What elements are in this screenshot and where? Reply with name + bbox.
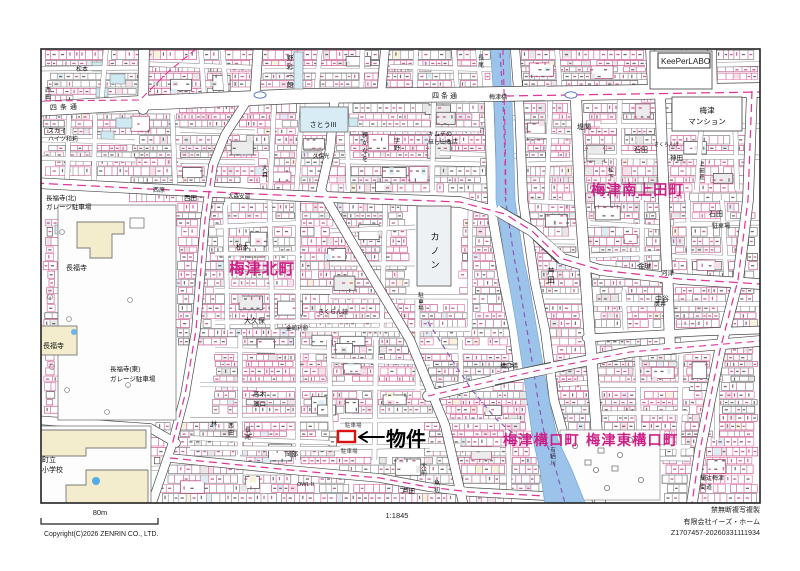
svg-text:梅津橋: 梅津橋 [489,93,507,101]
svg-text:ン: ン [430,260,439,270]
svg-text:縄辻梅津: 縄辻梅津 [700,474,724,482]
svg-text:石田: 石田 [634,146,648,154]
svg-text:一: 一 [287,73,294,80]
svg-text:ガレージ駐車場: ガレージ駐車場 [110,374,156,383]
svg-text:大久保: 大久保 [244,316,265,325]
svg-text:尾: 尾 [478,62,484,69]
svg-text:長福寺(北): 長福寺(北) [46,193,76,202]
svg-text:川: 川 [550,461,556,467]
svg-text:構口橋: 構口橋 [500,362,518,370]
svg-text:梅津構口町: 梅津構口町 [503,432,580,449]
svg-text:西原: 西原 [153,187,165,194]
svg-text:河津: 河津 [661,269,675,277]
svg-text:芦田: 芦田 [402,486,415,495]
svg-text:野: 野 [394,144,400,152]
svg-text:中谷: 中谷 [655,294,669,303]
svg-text:堤関: 堤関 [577,122,591,131]
svg-text:大: 大 [421,462,427,470]
svg-text:田: 田 [228,430,234,437]
svg-text:大森安溜: 大森安溜 [228,192,251,200]
svg-text:梅津: 梅津 [700,105,715,115]
svg-text:駐車場: 駐車場 [341,447,358,455]
svg-text:初: 初 [434,486,440,494]
svg-text:林: 林 [211,420,217,428]
svg-text:80m: 80m [93,508,108,517]
svg-text:さくらんぼ: さくらんぼ [654,141,679,148]
svg-text:彩: 彩 [287,62,294,71]
svg-text:長: 長 [245,427,251,434]
svg-text:神田: 神田 [670,153,683,162]
svg-text:野: 野 [287,54,294,62]
svg-text:ガレージ駐車場: ガレージ駐車場 [46,202,92,211]
svg-text:1:1845: 1:1845 [386,511,409,520]
svg-text:禁無断複写複製: 禁無断複写複製 [711,505,760,514]
svg-text:石田: 石田 [709,210,723,218]
svg-text:街道: 街道 [700,483,712,491]
svg-text:な: な [362,148,368,155]
svg-text:芦: 芦 [547,266,555,276]
svg-text:高木: 高木 [253,389,267,398]
svg-text:きくらん読: きくらん読 [318,308,348,316]
svg-text:駐: 駐 [418,291,424,299]
svg-text:久保光: 久保光 [313,152,330,160]
svg-text:長福寺(東): 長福寺(東) [110,364,140,373]
svg-text:松: 松 [608,166,614,174]
svg-text:長: 長 [478,55,484,62]
svg-text:田: 田 [699,168,705,175]
svg-text:Copyright(C)2026 ZENRIN CO., L: Copyright(C)2026 ZENRIN CO., LTD. [44,531,158,538]
svg-text:KeePerLABO: KeePerLABO [661,57,710,66]
svg-text:梅津北町: 梅津北町 [229,259,295,278]
svg-text:さとうIII: さとうIII [310,121,337,129]
svg-text:スカイ: スカイ [48,128,66,135]
svg-text:物件: 物件 [386,427,426,451]
svg-text:尾: 尾 [245,434,251,441]
svg-text:町立: 町立 [42,455,56,464]
svg-text:西: 西 [45,87,51,94]
svg-text:濱口: 濱口 [253,399,266,408]
svg-text:場: 場 [418,304,424,312]
svg-text:有限会社イーズ・ホーム: 有限会社イーズ・ホーム [684,517,760,526]
svg-text:森: 森 [262,171,268,179]
svg-text:大: 大 [262,164,268,172]
svg-text:前: 前 [421,469,427,477]
svg-text:駐車場: 駐車場 [712,222,730,230]
svg-text:カ: カ [430,232,439,242]
svg-text:松本: 松本 [236,242,250,251]
svg-text:車: 車 [418,298,424,306]
svg-text:梅津東構口町: 梅津東構口町 [586,432,678,449]
svg-text:朗: 朗 [287,80,294,89]
svg-text:長福寺: 長福寺 [66,263,87,272]
svg-text:田: 田 [45,94,51,101]
svg-text:キムチの: キムチの [428,131,452,138]
svg-text:上: 上 [699,160,705,168]
svg-text:長福寺: 長福寺 [43,341,64,350]
svg-text:駐車場: 駐車場 [345,421,362,429]
svg-text:ほし山本店: ほし山本店 [428,138,458,146]
svg-text:四条通: 四条通 [432,91,459,100]
svg-text:岡部: 岡部 [285,449,299,458]
svg-text:西: 西 [228,423,234,430]
svg-text:OWL II: OWL II [297,482,314,488]
svg-text:栖: 栖 [550,453,556,461]
svg-text:莊: 莊 [699,173,705,181]
svg-text:松本: 松本 [76,65,88,73]
svg-text:か: か [362,140,368,147]
svg-text:金同利憩: 金同利憩 [286,324,309,332]
svg-text:宇: 宇 [394,137,400,145]
svg-text:マンション: マンション [688,117,726,126]
svg-text:小学校: 小学校 [42,465,63,474]
svg-text:ノ: ノ [430,246,439,256]
svg-text:田: 田 [547,276,555,285]
svg-text:下: 下 [608,174,614,181]
svg-text:梅津南上田町: 梅津南上田町 [591,181,684,199]
svg-text:金珹: 金珹 [638,261,652,270]
svg-text:親: 親 [362,131,368,139]
svg-text:Z1707457-20260331111934: Z1707457-20260331111934 [671,528,760,537]
svg-text:ハイツ和莉: ハイツ和莉 [48,135,78,143]
svg-text:西田: 西田 [184,194,197,202]
svg-text:魚: 魚 [434,479,440,487]
svg-text:を: を [362,156,368,163]
